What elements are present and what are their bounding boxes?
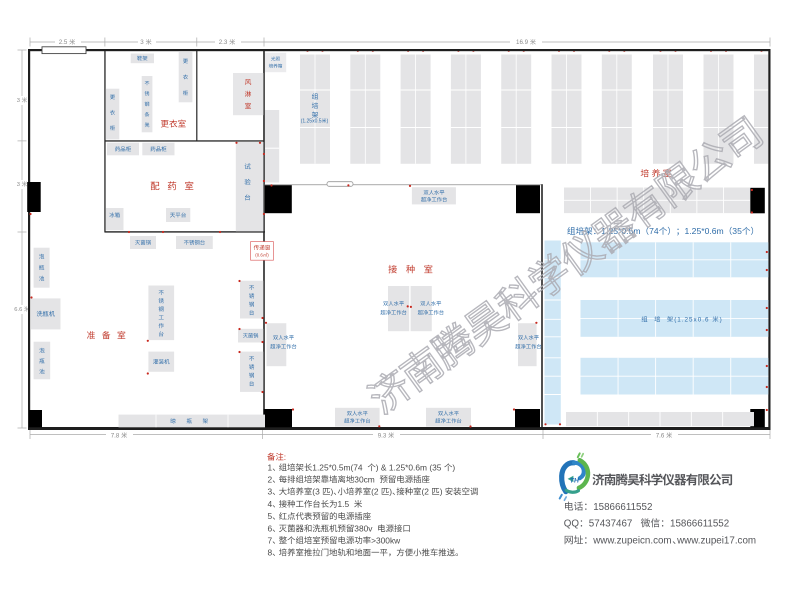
svg-text:www.zupeicn.com: www.zupeicn.com [592,536,671,547]
svg-text:1: 1 [268,462,273,472]
svg-text:6.6: 6.6 [14,307,22,313]
svg-text:7.8: 7.8 [111,433,120,440]
svg-text:15866611552: 15866611552 [593,502,652,513]
svg-text:35: 35 [732,226,742,236]
svg-text:): ) [452,462,455,472]
svg-text:380v: 380v [354,523,373,533]
svg-text:6: 6 [268,523,273,533]
svg-text:4: 4 [268,499,273,509]
svg-text:3: 3 [17,98,20,104]
svg-text:3: 3 [17,182,20,188]
svg-text:TH: TH [570,477,580,484]
svg-text:16.9: 16.9 [516,39,529,46]
svg-text:(2: (2 [422,487,430,497]
svg-text:1.25*0.6m: 1.25*0.6m [685,226,724,236]
svg-text:): ) [440,487,443,497]
svg-text:9.3: 9.3 [378,433,387,440]
svg-text:2.3: 2.3 [219,39,228,46]
svg-text:3: 3 [268,487,273,497]
svg-text:(2: (2 [371,487,379,497]
svg-text:2: 2 [268,474,273,484]
svg-text:QQ: QQ [564,519,580,530]
svg-text:>300kw: >300kw [371,535,401,545]
svg-text:15866611552: 15866611552 [670,519,729,530]
svg-text:3: 3 [140,39,144,46]
svg-text:(0.6: (0.6 [255,253,263,258]
svg-text:1.25*0.5m(74: 1.25*0.5m(74 [312,462,363,472]
svg-text:(1.25x0.5: (1.25x0.5 [301,118,322,124]
svg-text:7: 7 [268,535,273,545]
svg-text:) & 1.25*0.6m (35: ) & 1.25*0.6m (35 [376,462,442,472]
svg-text:www.zupei17.com: www.zupei17.com [676,536,756,547]
svg-text:): ) [389,487,392,497]
svg-text:7.6: 7.6 [656,433,665,440]
svg-text:30cm: 30cm [354,474,375,484]
svg-text:(1.25x0.6: (1.25x0.6 [674,317,709,324]
svg-text:2.5: 2.5 [59,39,68,46]
svg-text:): ) [331,487,334,497]
svg-text:74: 74 [649,226,659,236]
svg-text:57437467: 57437467 [589,519,633,530]
svg-text::: : [284,452,286,462]
svg-text:1.5: 1.5 [338,499,350,509]
svg-text:): ) [720,317,723,324]
svg-text:5: 5 [268,511,273,521]
svg-text:8: 8 [268,548,273,558]
svg-text:(3: (3 [312,487,320,497]
